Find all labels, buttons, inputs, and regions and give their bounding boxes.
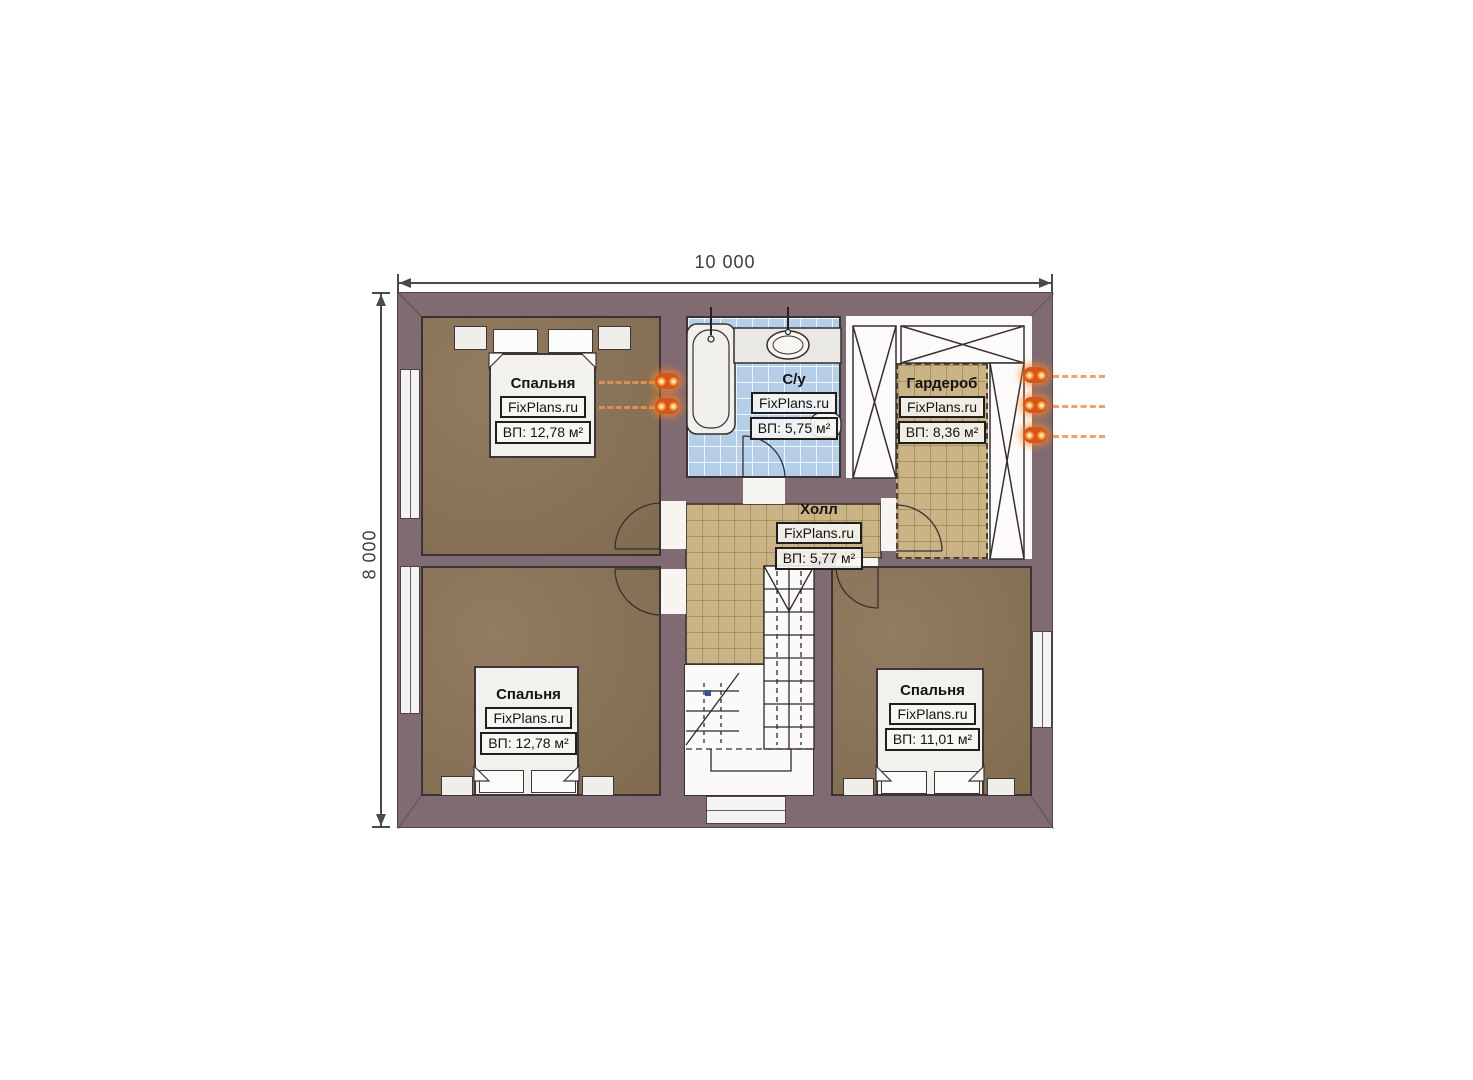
heating-line: [599, 406, 655, 409]
room-name: С/у: [782, 372, 805, 389]
nightstand: [843, 778, 874, 796]
radiator-icon: [1023, 427, 1047, 443]
nightstand: [454, 326, 487, 350]
window: [706, 796, 786, 824]
watermark: FixPlans.ru: [889, 703, 975, 726]
pillow: [531, 770, 576, 793]
radiator-icon: [1023, 367, 1047, 383]
heating-line: [1053, 405, 1105, 408]
window: [1032, 631, 1052, 728]
floor-plan: Спальня FixPlans.ru ВП: 12,78 м² С/у Fix…: [397, 292, 1053, 828]
watermark: FixPlans.ru: [485, 707, 571, 730]
watermark: FixPlans.ru: [751, 392, 837, 415]
heating-line: [1053, 375, 1105, 378]
heating-line: [599, 381, 655, 384]
watermark: FixPlans.ru: [500, 396, 586, 419]
dimension-line-horizontal: [397, 277, 1053, 289]
room-name: Гардероб: [907, 376, 978, 393]
pillow: [493, 329, 538, 353]
dimension-line-vertical: [375, 292, 387, 828]
room-name: Холл: [800, 502, 838, 519]
room-name: Спальня: [496, 687, 561, 704]
heating-line: [1053, 435, 1105, 438]
arrow-left-icon: [399, 278, 411, 288]
dimension-width-label: 10 000: [397, 252, 1053, 273]
room-label-bathroom: С/у FixPlans.ru ВП: 5,75 м²: [734, 372, 854, 440]
pillow: [934, 771, 980, 794]
nightstand: [441, 776, 473, 796]
arrow-right-icon: [1039, 278, 1051, 288]
room-area: ВП: 8,36 м²: [898, 421, 987, 444]
staircase-flight: [764, 566, 814, 749]
room-area: ВП: 12,78 м²: [495, 421, 591, 444]
pillow: [881, 771, 927, 794]
room-area: ВП: 5,77 м²: [775, 547, 864, 570]
radiator-icon: [655, 398, 679, 414]
room-label-hall: Холл FixPlans.ru ВП: 5,77 м²: [764, 502, 874, 570]
closet-area: [896, 316, 1032, 363]
room-label-bedroom-bottom-left: Спальня FixPlans.ru ВП: 12,78 м²: [471, 687, 586, 755]
radiator-icon: [1023, 397, 1047, 413]
nightstand: [987, 778, 1015, 796]
watermark: FixPlans.ru: [776, 522, 862, 545]
room-name: Спальня: [900, 683, 965, 700]
dimension-line: [397, 282, 1053, 284]
radiator-icon: [655, 373, 679, 389]
pillow: [479, 770, 524, 793]
arrow-down-icon: [376, 814, 386, 826]
room-area: ВП: 5,75 м²: [750, 417, 839, 440]
room-label-bedroom-bottom-right: Спальня FixPlans.ru ВП: 11,01 м²: [875, 683, 990, 751]
window: [400, 566, 420, 714]
closet-area: [988, 363, 1032, 559]
dimension-line: [380, 292, 382, 828]
room-label-wardrobe: Гардероб FixPlans.ru ВП: 8,36 м²: [892, 376, 992, 444]
floor-plan-page: 10 000 8 000: [0, 0, 1473, 1080]
nightstand: [582, 776, 614, 796]
room-area: ВП: 11,01 м²: [885, 728, 980, 751]
watermark: FixPlans.ru: [899, 396, 985, 419]
window: [400, 369, 420, 519]
room-area: ВП: 12,78 м²: [480, 732, 576, 755]
nightstand: [598, 326, 631, 350]
room-name: Спальня: [511, 376, 576, 393]
room-label-bedroom-top-left: Спальня FixPlans.ru ВП: 12,78 м²: [483, 376, 603, 444]
pillow: [548, 329, 593, 353]
arrow-up-icon: [376, 294, 386, 306]
